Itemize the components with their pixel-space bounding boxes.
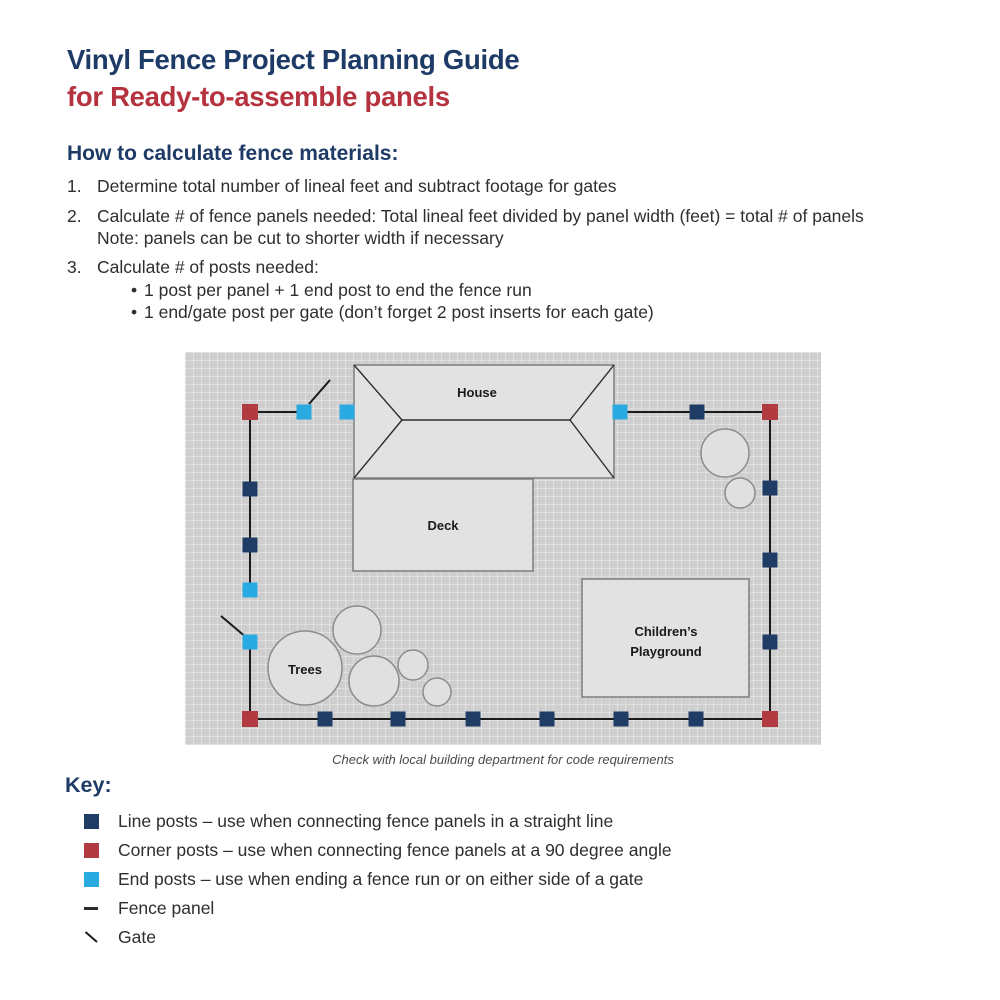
key-label: Fence panel (118, 898, 214, 919)
instruction-text: Calculate # of posts needed: (97, 257, 319, 277)
key-item-end-posts: End posts – use when ending a fence run … (84, 866, 643, 892)
map-label: House (457, 385, 497, 400)
line-post (540, 712, 555, 727)
corner-post (242, 404, 258, 420)
instruction-text: Calculate # of fence panels needed: Tota… (97, 206, 864, 226)
end-post-swatch-icon (84, 872, 99, 887)
site-plan-svg: HouseDeckTreesChildren’sPlayground (185, 352, 821, 745)
corner-post (762, 404, 778, 420)
tree-circle (398, 650, 428, 680)
line-post (690, 405, 705, 420)
page-subtitle: for Ready-to-assemble panels (67, 81, 450, 113)
bullet-icon: • (131, 279, 144, 301)
fence-panel-icon (84, 901, 99, 916)
end-post (243, 635, 258, 650)
key-label: End posts – use when ending a fence run … (118, 869, 643, 890)
tree-circle (349, 656, 399, 706)
tree-circle (701, 429, 749, 477)
key-item-fence-panel: Fence panel (84, 895, 214, 921)
list-number: 1. (67, 175, 97, 197)
line-post (614, 712, 629, 727)
key-item-line-posts: Line posts – use when connecting fence p… (84, 808, 613, 834)
instruction-item-1: 1.Determine total number of lineal feet … (67, 175, 616, 197)
instruction-item-3: 3.Calculate # of posts needed: (67, 256, 319, 278)
bullet-text: 1 post per panel + 1 end post to end the… (144, 280, 532, 300)
instruction-bullet-2: •1 end/gate post per gate (don’t forget … (131, 301, 654, 323)
end-post (613, 405, 628, 420)
key-heading: Key: (65, 773, 112, 798)
line-post (763, 635, 778, 650)
corner-post (762, 711, 778, 727)
line-post (391, 712, 406, 727)
tree-circle (423, 678, 451, 706)
line-post (689, 712, 704, 727)
instruction-bullet-1: •1 post per panel + 1 end post to end th… (131, 279, 532, 301)
instruction-text: Determine total number of lineal feet an… (97, 176, 616, 196)
gate-icon (84, 930, 99, 945)
corner-post (242, 711, 258, 727)
corner-post-swatch-icon (84, 843, 99, 858)
list-number: 2. (67, 205, 97, 227)
list-number: 3. (67, 256, 97, 278)
line-post (466, 712, 481, 727)
end-post (297, 405, 312, 420)
key-item-gate: Gate (84, 924, 156, 950)
diagram-caption: Check with local building department for… (185, 752, 821, 767)
map-label: Deck (427, 518, 459, 533)
bullet-text: 1 end/gate post per gate (don’t forget 2… (144, 302, 654, 322)
line-post-swatch-icon (84, 814, 99, 829)
line-post (243, 538, 258, 553)
line-post (318, 712, 333, 727)
gate-line (309, 380, 330, 404)
map-label: Playground (630, 644, 702, 659)
site-plan-diagram: HouseDeckTreesChildren’sPlayground (185, 352, 821, 745)
line-post (243, 482, 258, 497)
line-post (763, 553, 778, 568)
key-item-corner-posts: Corner posts – use when connecting fence… (84, 837, 672, 863)
line-post (763, 481, 778, 496)
tree-circle (725, 478, 755, 508)
end-post (243, 583, 258, 598)
end-post (340, 405, 355, 420)
key-label: Gate (118, 927, 156, 948)
key-label: Line posts – use when connecting fence p… (118, 811, 613, 832)
house-outline (354, 365, 614, 478)
map-label: Trees (288, 662, 322, 677)
map-label: Children’s (634, 624, 697, 639)
bullet-icon: • (131, 301, 144, 323)
key-label: Corner posts – use when connecting fence… (118, 840, 672, 861)
instructions-heading: How to calculate fence materials: (67, 142, 398, 166)
instruction-item-2: 2.Calculate # of fence panels needed: To… (67, 205, 864, 249)
instruction-note: Note: panels can be cut to shorter width… (97, 227, 864, 249)
tree-circle (333, 606, 381, 654)
page-title: Vinyl Fence Project Planning Guide (67, 44, 519, 76)
